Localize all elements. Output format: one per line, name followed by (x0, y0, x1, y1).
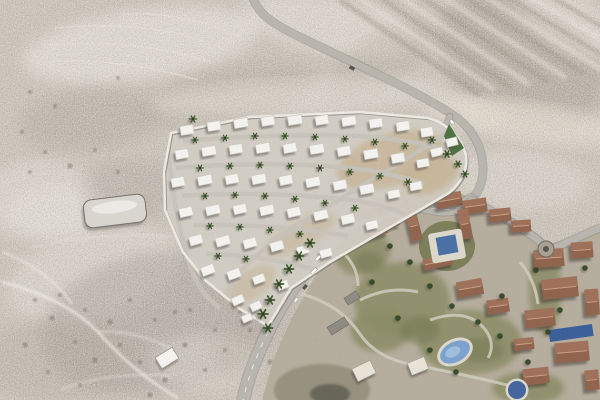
grain-overlay (0, 0, 600, 400)
photo-grain (0, 0, 600, 400)
aerial-view-canvas (0, 0, 600, 400)
aerial-photo (0, 0, 600, 400)
